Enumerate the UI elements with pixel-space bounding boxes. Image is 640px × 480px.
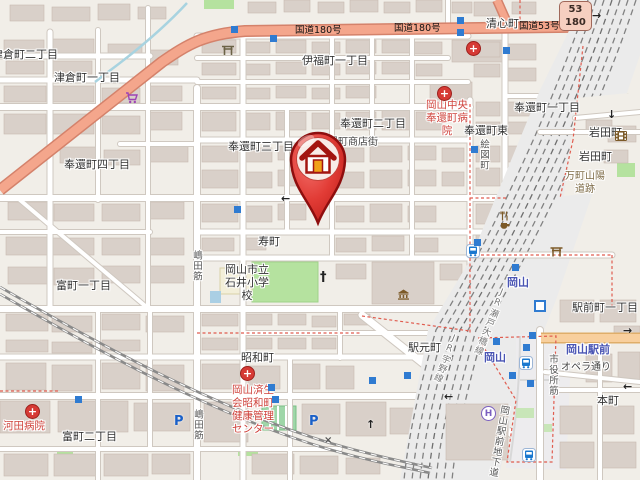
route-shield-top: 53 — [565, 3, 586, 16]
route-shield-53-180: 53 180 — [559, 1, 592, 31]
map-canvas — [0, 0, 640, 480]
map-viewport[interactable]: 津倉町二丁目津倉町一丁目伊福町一丁目清心町奉還町一丁目奉還町二丁目奉還町三丁目奉… — [0, 0, 640, 480]
home-marker-pin[interactable] — [283, 120, 353, 228]
home-pin-graphic — [283, 120, 353, 228]
route-shield-bottom: 180 — [565, 16, 586, 29]
